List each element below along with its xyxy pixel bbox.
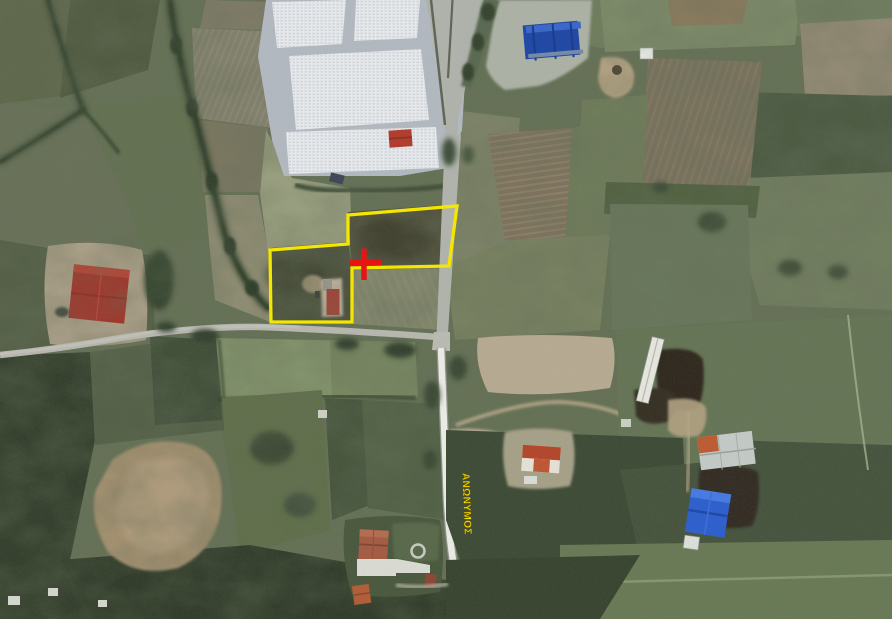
- svg-text:ΑΝΩΝΥΜΟΣ: ΑΝΩΝΥΜΟΣ: [460, 473, 473, 535]
